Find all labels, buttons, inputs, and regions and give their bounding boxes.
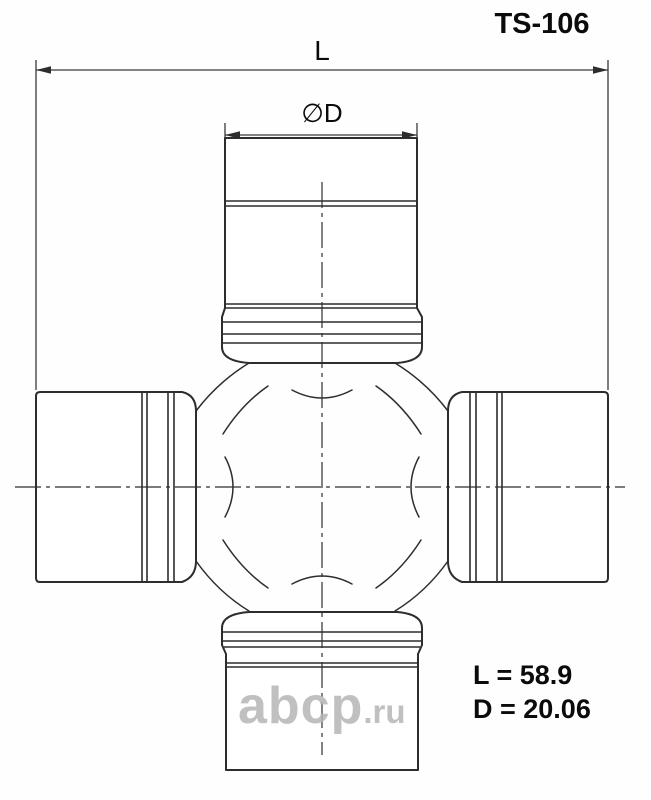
fillet-arc-se — [395, 561, 448, 611]
inner-arc-nw — [223, 386, 268, 434]
fillet-arc-sw — [196, 561, 249, 611]
cup-outline — [222, 138, 422, 363]
universal-joint-cross-drawing: L ∅D — [0, 0, 651, 800]
watermark-brand: abcp — [238, 677, 363, 735]
dimension-diameter: ∅D — [225, 98, 417, 139]
fillet-arc-ne — [395, 363, 448, 411]
inner-arc-sw — [223, 540, 268, 588]
arrow-right-icon — [593, 66, 608, 74]
arrow-left-icon — [36, 66, 51, 74]
watermark-tld: .ru — [363, 693, 405, 730]
inner-arc-ne — [376, 386, 421, 434]
length-dimension-label: L — [314, 35, 330, 66]
spec-diameter: D = 20.06 — [473, 694, 591, 724]
top-bearing-cup — [222, 138, 422, 363]
drawing-sheet: L ∅D — [0, 0, 651, 800]
inner-arc-se — [376, 540, 421, 588]
fillet-arc-nw — [196, 363, 249, 411]
part-number: TS-106 — [494, 8, 589, 40]
diameter-dimension-label: ∅D — [301, 98, 342, 128]
spec-length: L = 58.9 — [473, 660, 572, 690]
spec-values: L = 58.9 D = 20.06 — [473, 660, 591, 724]
